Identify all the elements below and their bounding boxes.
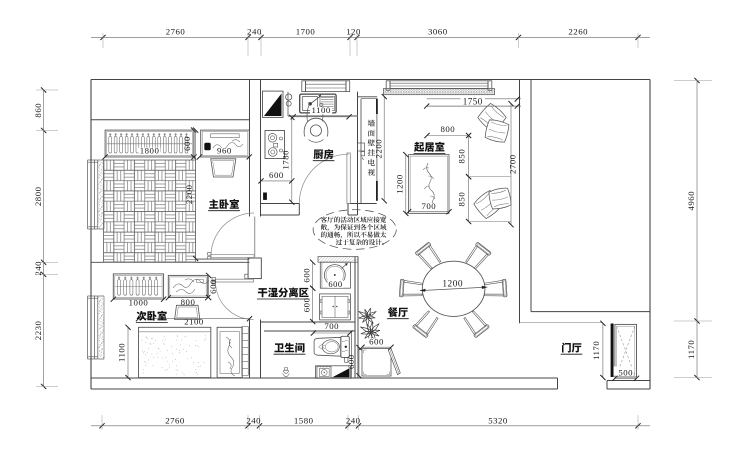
svg-text:850: 850 xyxy=(457,192,467,207)
svg-text:600: 600 xyxy=(208,279,218,294)
svg-text:600: 600 xyxy=(346,354,356,369)
svg-text:2800: 2800 xyxy=(33,186,43,206)
svg-text:120: 120 xyxy=(346,27,361,37)
svg-text:1700: 1700 xyxy=(296,27,316,37)
svg-text:240: 240 xyxy=(33,261,43,276)
svg-text:800: 800 xyxy=(181,297,196,307)
svg-text:600: 600 xyxy=(301,297,311,312)
svg-text:1000: 1000 xyxy=(129,297,149,307)
svg-text:1170: 1170 xyxy=(686,340,696,359)
svg-text:1580: 1580 xyxy=(294,415,314,425)
svg-text:500: 500 xyxy=(618,368,633,378)
svg-text:960: 960 xyxy=(217,146,232,156)
svg-text:240: 240 xyxy=(346,415,361,425)
svg-text:2260: 2260 xyxy=(568,27,588,37)
svg-text:1100: 1100 xyxy=(312,105,331,115)
svg-text:2700: 2700 xyxy=(508,154,518,174)
svg-text:860: 860 xyxy=(33,103,43,118)
svg-text:600: 600 xyxy=(328,279,342,289)
svg-text:240: 240 xyxy=(246,415,261,425)
svg-text:2200: 2200 xyxy=(184,184,194,204)
svg-text:700: 700 xyxy=(421,201,436,211)
svg-text:800: 800 xyxy=(440,124,455,134)
svg-text:4960: 4960 xyxy=(686,191,696,211)
svg-text:600: 600 xyxy=(301,268,311,283)
svg-text:2230: 2230 xyxy=(33,321,43,341)
svg-text:1200: 1200 xyxy=(442,280,463,290)
svg-text:600: 600 xyxy=(369,336,384,346)
svg-text:2760: 2760 xyxy=(165,415,185,425)
svg-text:600: 600 xyxy=(182,136,192,151)
svg-text:1200: 1200 xyxy=(395,174,405,194)
svg-text:1780: 1780 xyxy=(281,150,291,170)
svg-text:1170: 1170 xyxy=(591,341,601,360)
svg-text:1100: 1100 xyxy=(117,343,127,362)
svg-text:240: 240 xyxy=(247,27,262,37)
svg-text:600: 600 xyxy=(269,170,284,180)
svg-text:2760: 2760 xyxy=(166,27,186,37)
svg-text:700: 700 xyxy=(324,321,339,331)
svg-text:5320: 5320 xyxy=(488,415,508,425)
svg-text:1800: 1800 xyxy=(140,146,160,156)
svg-text:2100: 2100 xyxy=(184,317,204,327)
svg-text:3060: 3060 xyxy=(428,27,448,37)
svg-text:850: 850 xyxy=(457,149,467,164)
svg-text:1750: 1750 xyxy=(463,96,483,106)
svg-text:2200: 2200 xyxy=(373,139,383,159)
